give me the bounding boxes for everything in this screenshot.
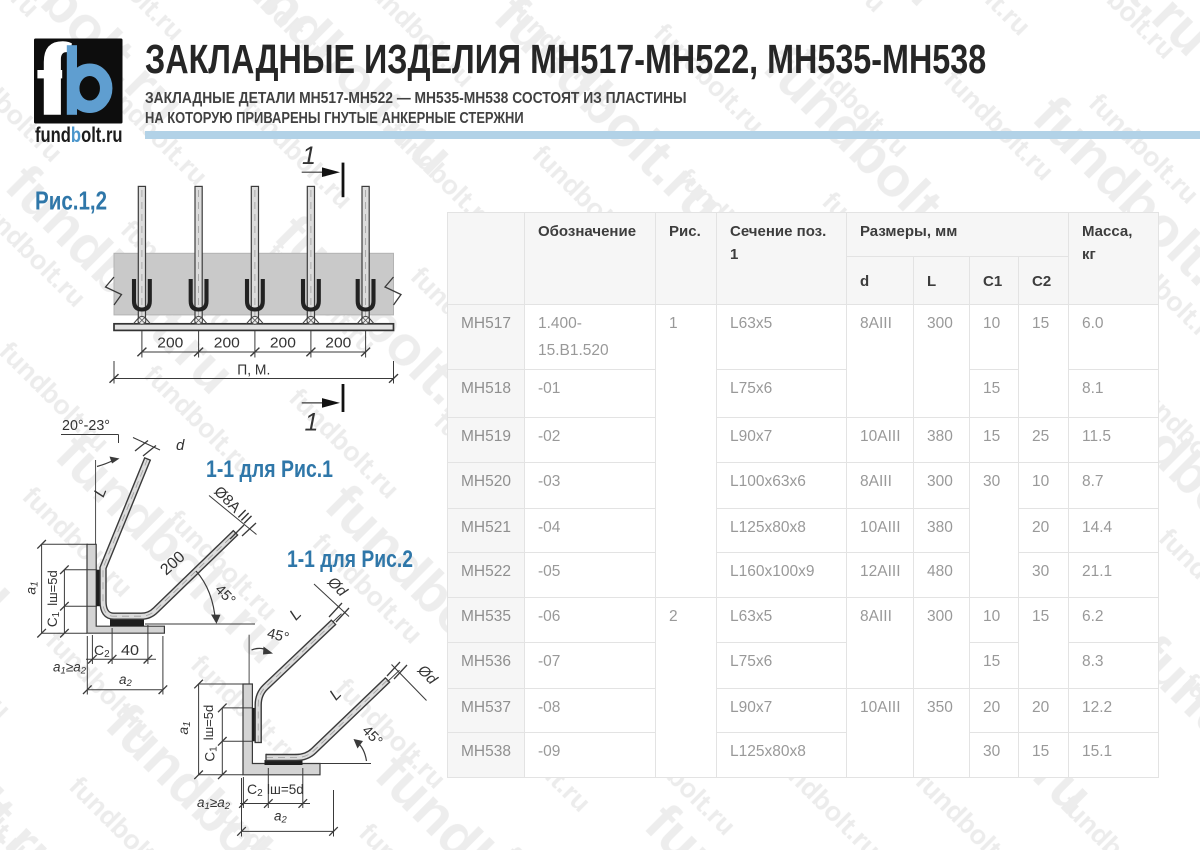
svg-text:lш=5d: lш=5d [201,705,216,740]
svg-text:45°: 45° [265,626,290,647]
svg-text:C2: C2 [94,642,110,660]
svg-text:1: 1 [302,142,316,170]
svg-text:L: L [327,686,345,704]
svg-text:L: L [91,485,110,500]
svg-text:40: 40 [121,642,139,659]
svg-text:a1≥a2: a1≥a2 [53,660,87,677]
svg-text:1-1 для Рис.2: 1-1 для Рис.2 [287,546,413,573]
svg-text:200: 200 [325,335,351,352]
svg-text:L: L [287,606,305,624]
svg-text:C1: C1 [203,746,220,762]
svg-text:1: 1 [305,409,319,437]
svg-text:d: d [176,437,185,454]
svg-text:C2: C2 [247,781,263,799]
svg-text:a1: a1 [175,721,193,734]
svg-text:45°: 45° [212,582,239,609]
svg-text:a2: a2 [119,672,133,689]
svg-text:200: 200 [157,548,188,579]
svg-text:45°: 45° [359,723,386,750]
svg-text:a1: a1 [23,581,41,594]
svg-text:П, М.: П, М. [237,363,270,379]
svg-text:200: 200 [214,335,240,352]
svg-text:Ød: Ød [413,661,440,688]
svg-text:Рис.1,2: Рис.1,2 [35,186,107,216]
svg-text:Ø8A III: Ø8A III [210,483,254,527]
svg-text:200: 200 [157,335,183,352]
svg-text:20°-23°: 20°-23° [62,417,110,434]
svg-text:lш=5d: lш=5d [45,570,60,605]
svg-text:C1: C1 [45,611,62,627]
svg-text:200: 200 [270,335,296,352]
svg-text:lш=5d: lш=5d [267,782,304,797]
svg-text:a2: a2 [274,809,288,826]
svg-text:a1≥a2: a1≥a2 [197,795,231,812]
svg-text:1-1 для Рис.1: 1-1 для Рис.1 [206,456,333,483]
